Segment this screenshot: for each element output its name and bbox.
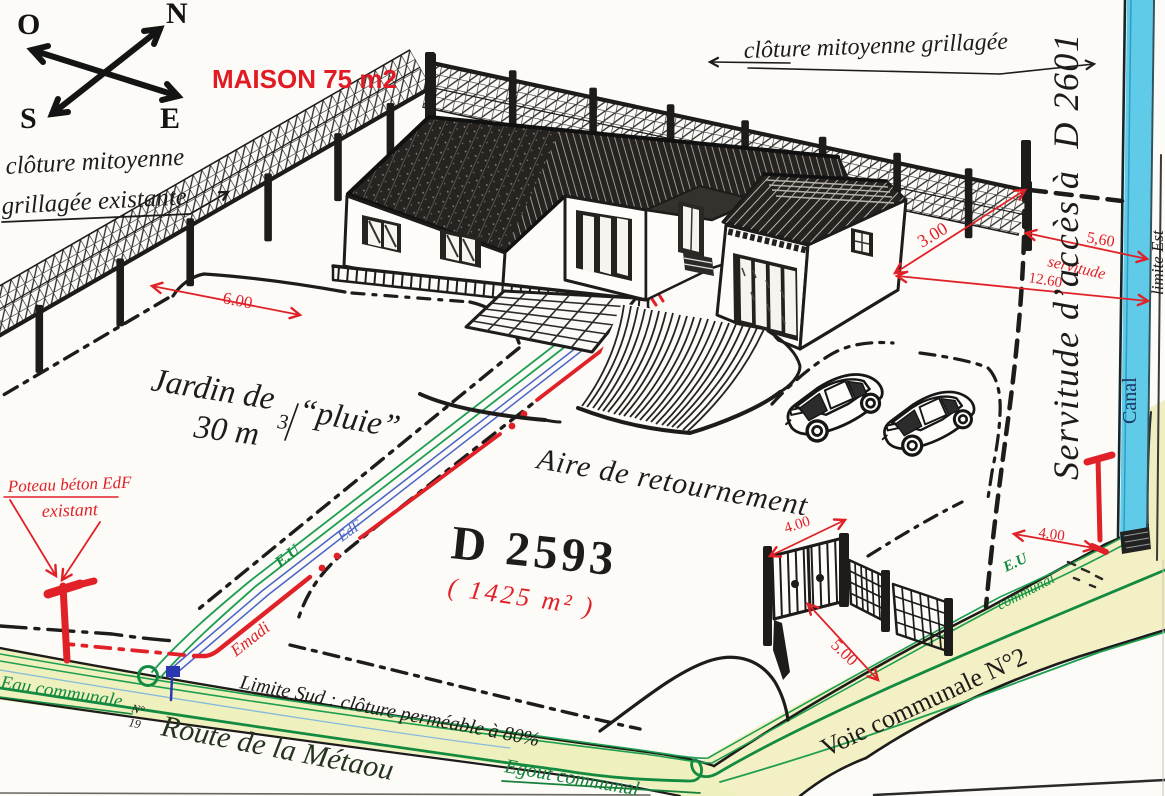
svg-text:N: N bbox=[166, 0, 188, 30]
svg-text:limite Est: limite Est bbox=[1148, 229, 1165, 295]
svg-text:MAISON 75 m2: MAISON 75 m2 bbox=[212, 64, 397, 94]
svg-text:Canal: Canal bbox=[1119, 377, 1141, 424]
svg-text:existant: existant bbox=[41, 499, 99, 521]
svg-text:O: O bbox=[17, 8, 40, 41]
svg-text:S: S bbox=[20, 102, 37, 135]
svg-text:E: E bbox=[160, 102, 180, 135]
svg-text:Servitude d’accès à D 2601: Servitude d’accès à D 2601 bbox=[1046, 33, 1086, 480]
